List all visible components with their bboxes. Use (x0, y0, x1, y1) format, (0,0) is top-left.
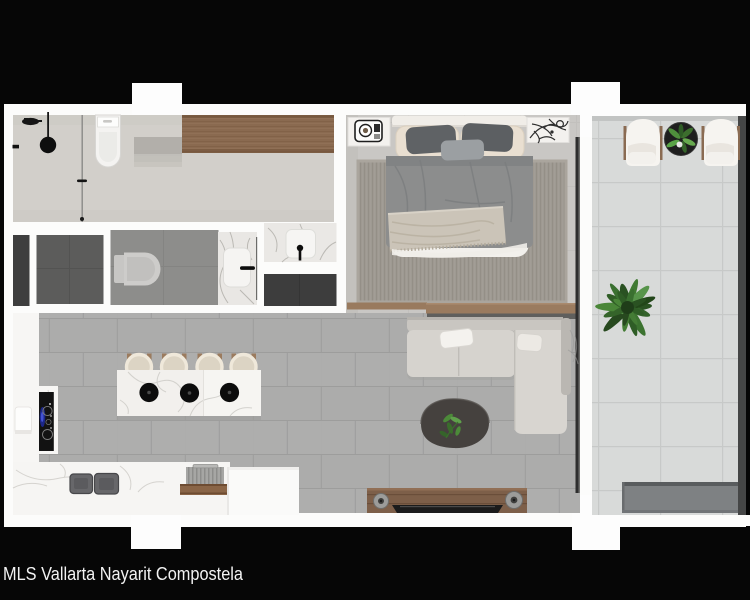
svg-text:MLS Vallarta Nayarit Compostel: MLS Vallarta Nayarit Compostela (3, 563, 244, 584)
